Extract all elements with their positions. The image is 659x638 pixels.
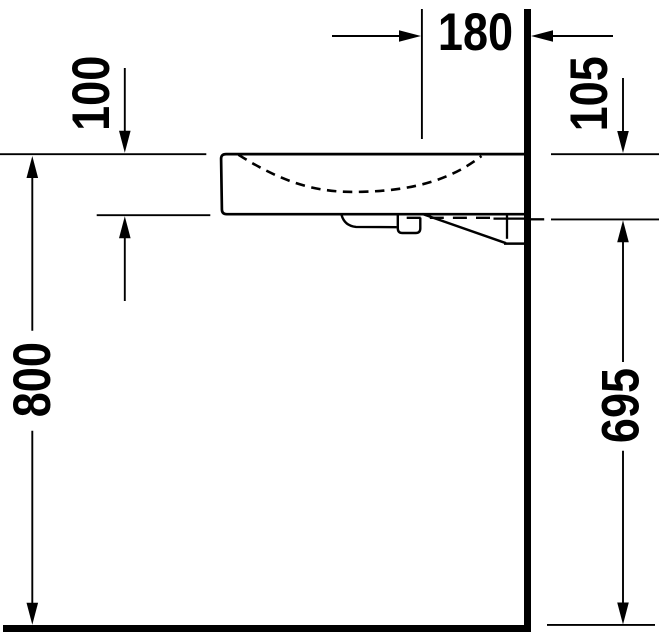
svg-text:100: 100	[62, 56, 121, 131]
svg-text:800: 800	[2, 342, 61, 417]
svg-text:695: 695	[591, 368, 650, 443]
svg-text:105: 105	[560, 56, 619, 131]
svg-text:180: 180	[438, 2, 513, 61]
